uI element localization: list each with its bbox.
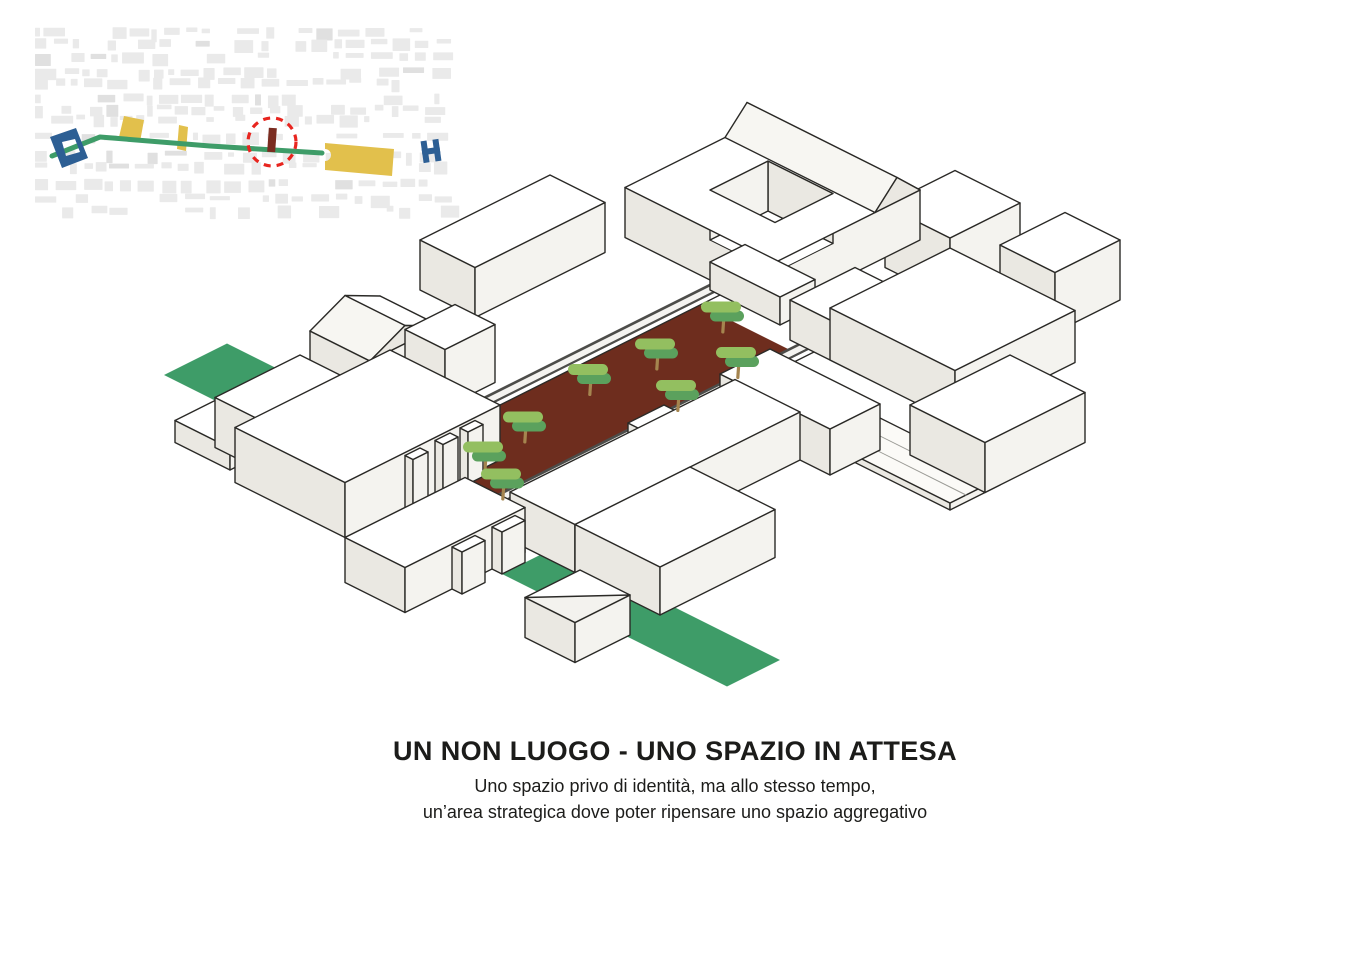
- caption-subtitle-line1: Uno spazio privo di identità, ma allo st…: [0, 774, 1350, 800]
- building-slab-northwest: [420, 175, 605, 318]
- site-axonometric-diagram: [164, 103, 1120, 687]
- caption-title: UN NON LUOGO - UNO SPAZIO IN ATTESA: [0, 736, 1350, 767]
- caption-subtitle-line2: un’area strategica dove poter ripensare …: [0, 800, 1350, 826]
- map-building-fabric: [35, 27, 459, 219]
- presentation-board: UN NON LUOGO - UNO SPAZIO IN ATTESA Uno …: [0, 0, 1350, 955]
- locator-map: [35, 27, 459, 219]
- site-marker: [267, 128, 277, 152]
- caption: UN NON LUOGO - UNO SPAZIO IN ATTESA Uno …: [0, 736, 1350, 825]
